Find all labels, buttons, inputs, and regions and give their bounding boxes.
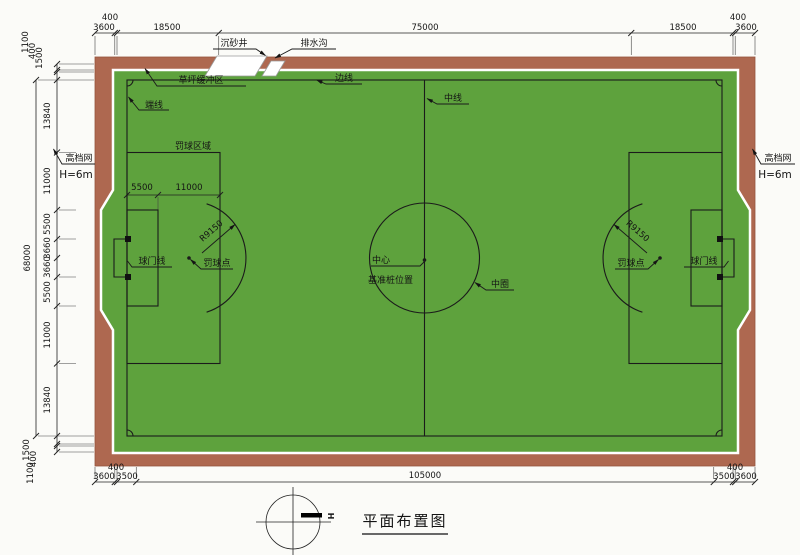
datum-label: 基准桩位置 — [368, 274, 413, 286]
dim-top-3600-right: 3600 — [735, 23, 757, 33]
dim-penalty-5500: 5500 — [131, 183, 153, 193]
penalty-spot-right-label: 罚球点 — [617, 257, 644, 269]
dim-left-13840-b: 13840 — [43, 386, 53, 413]
dim-bottom-3500-left: 3500 — [116, 472, 138, 482]
dim-top-400-right: 400 — [730, 13, 746, 23]
dim-bottom-3600-right: 3600 — [735, 472, 757, 482]
settling-well-leader — [213, 49, 266, 56]
fence-right-height: H=6m — [758, 169, 792, 181]
fence-right-label: 高档网 — [764, 152, 791, 164]
drain-label: 排水沟 — [300, 37, 327, 49]
dim-left-bottom-1100: 1100 — [26, 462, 36, 484]
center-label: 中心 — [372, 254, 390, 266]
plan-drawing-canvas: 3600 400 18500 75000 18500 400 3600 3600… — [0, 0, 800, 555]
center-circle-label: 中圈 — [491, 278, 509, 290]
goal-post-right-top — [717, 236, 723, 242]
dim-top-75000: 75000 — [411, 23, 438, 33]
dim-left-3660-b: 3660 — [43, 256, 53, 278]
dim-left-5500-a: 5500 — [43, 213, 53, 235]
dim-penalty-11000: 11000 — [175, 183, 202, 193]
dim-left-68000: 68000 — [23, 244, 33, 271]
dimension-line-left-inner — [54, 61, 60, 455]
dim-top-400-left: 400 — [102, 13, 118, 23]
field-polygon — [101, 70, 750, 453]
dim-left-11000-b: 11000 — [43, 321, 53, 348]
dimension-line-left-outer — [33, 77, 39, 439]
center-spot — [423, 258, 427, 262]
site-plan-svg: 3600 400 18500 75000 18500 400 3600 3600… — [0, 0, 800, 555]
sideline-label: 边线 — [335, 72, 353, 84]
dim-top-18500-right: 18500 — [669, 23, 696, 33]
fence-left-label: 高档网 — [65, 152, 92, 164]
penalty-area-label: 罚球区域 — [175, 140, 211, 152]
title-block: H 平面布置图 — [256, 487, 448, 555]
dim-left-3660-a: 3660 — [43, 237, 53, 259]
centerline-label: 中线 — [444, 92, 462, 104]
north-mark-bar — [301, 513, 322, 518]
penalty-spot-right — [658, 256, 662, 260]
dim-left-top-1500: 1500 — [35, 47, 45, 69]
north-mark-letter: H — [326, 513, 335, 520]
dim-bottom-3600-left: 3600 — [93, 472, 115, 482]
endline-label: 端线 — [145, 99, 163, 111]
fence-left-height: H=6m — [59, 169, 93, 181]
dim-bottom-105000: 105000 — [409, 471, 441, 481]
buffer-zone-label: 草坪缓冲区 — [178, 74, 223, 86]
dim-bottom-3500-right: 3500 — [713, 472, 735, 482]
goal-post-left-top — [125, 236, 131, 242]
goal-post-right-bottom — [717, 274, 723, 280]
settling-well-label: 沉砂井 — [220, 37, 247, 49]
goal-post-left-bottom — [125, 274, 131, 280]
penalty-spot-left — [187, 256, 191, 260]
goal-line-right-label: 球门线 — [690, 255, 717, 267]
drawing-title: 平面布置图 — [362, 512, 447, 530]
dim-top-3600-left: 3600 — [93, 23, 115, 33]
dim-left-11000-a: 11000 — [43, 167, 53, 194]
dim-top-18500-left: 18500 — [153, 23, 180, 33]
penalty-spot-left-label: 罚球点 — [203, 257, 230, 269]
dim-left-13840-a: 13840 — [43, 102, 53, 129]
goal-line-left-label: 球门线 — [138, 255, 165, 267]
dim-left-5500-b: 5500 — [43, 281, 53, 303]
grass-field — [101, 70, 750, 453]
